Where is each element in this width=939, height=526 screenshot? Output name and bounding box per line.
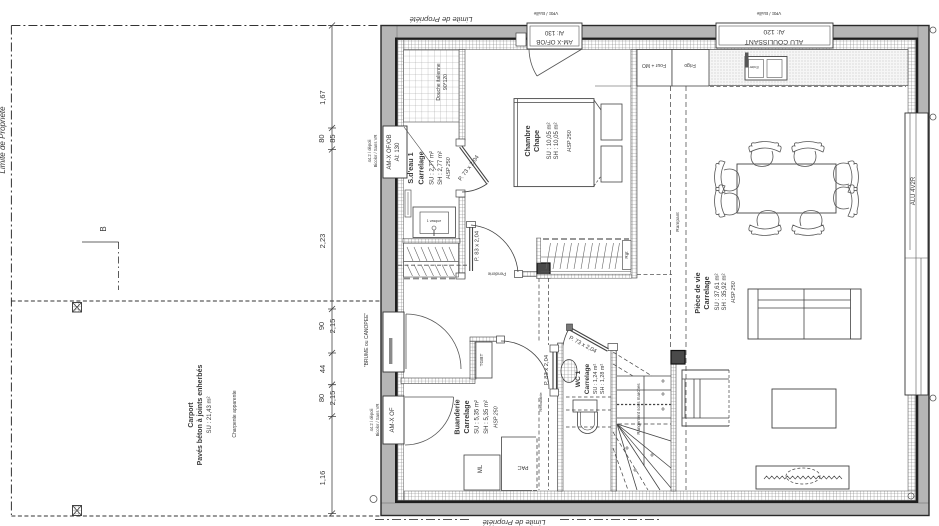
svg-text:2,15: 2,15 [328, 391, 337, 406]
svg-text:Al: 120: Al: 120 [763, 28, 784, 35]
svg-text:Limite de Propriété: Limite de Propriété [410, 15, 473, 24]
svg-text:Carrelage: Carrelage [584, 363, 591, 394]
svg-text:WC 1: WC 1 [575, 370, 582, 387]
svg-text:AM-X OF/OB: AM-X OF/OB [387, 134, 393, 169]
svg-text:Al: 130: Al: 130 [395, 142, 401, 161]
svg-text:2,23: 2,23 [318, 234, 327, 249]
svg-text:Evier: Evier [749, 65, 759, 70]
svg-text:P. 83 x 2,04: P. 83 x 2,04 [544, 354, 550, 385]
svg-text:85: 85 [328, 134, 337, 142]
svg-text:SU : 21,43 m²: SU : 21,43 m² [207, 396, 213, 433]
svg-text:SU : 5,35 m²: SU : 5,35 m² [475, 400, 481, 434]
svg-text:HSP 250: HSP 250 [446, 157, 452, 178]
svg-text:SU : 10,05 m²: SU : 10,05 m² [547, 122, 553, 159]
svg-text:PAC: PAC [518, 464, 529, 470]
svg-text:AM-X OF/OB: AM-X OF/OB [536, 38, 572, 45]
svg-text:Penderie: Penderie [487, 272, 506, 277]
svg-text:SU : 37,61 m²: SU : 37,61 m² [715, 273, 721, 310]
svg-text:1,67: 1,67 [318, 90, 327, 105]
svg-text:90*120: 90*120 [443, 74, 449, 90]
svg-text:ALU COULISSANT: ALU COULISSANT [745, 38, 804, 45]
svg-text:SH : 10,05 m²: SH : 10,05 m² [554, 122, 560, 159]
svg-text:Carrelage: Carrelage [417, 151, 426, 184]
svg-text:Buanderie: Buanderie [453, 399, 462, 434]
svg-text:ALU 4V2R: ALU 4V2R [911, 176, 917, 205]
svg-text:Frigo: Frigo [684, 62, 696, 68]
svg-text:HSP 250: HSP 250 [567, 130, 573, 151]
svg-text:SH : 5,35 m²: SH : 5,35 m² [484, 400, 490, 434]
svg-text:Bicolor / Sans VR: Bicolor / Sans VR [373, 135, 378, 168]
svg-text:Chambre: Chambre [523, 125, 532, 156]
svg-text:Pavés béton à joints enherbés: Pavés béton à joints enherbés [197, 365, 204, 466]
svg-text:Carport: Carport [188, 402, 195, 428]
svg-text:Four + MO: Four + MO [642, 62, 666, 68]
svg-text:Douche italienne: Douche italienne [436, 63, 442, 100]
svg-text:Rampant: Rampant [675, 212, 681, 232]
svg-text:Pièce de vie: Pièce de vie [693, 272, 702, 313]
svg-text:VRE / Baille: VRE / Baille [756, 11, 781, 16]
svg-text:B: B [99, 226, 108, 231]
svg-text:44.2 / dépoli: 44.2 / dépoli [369, 409, 374, 432]
svg-text:VRE / Baille: VRE / Baille [533, 11, 558, 16]
svg-text:Charpente apparente: Charpente apparente [232, 390, 238, 437]
svg-text:P. 73 x 2,04: P. 73 x 2,04 [568, 335, 598, 355]
svg-text:HSP 250: HSP 250 [731, 281, 737, 302]
svg-text:Limite de Propriété: Limite de Propriété [483, 518, 546, 526]
svg-text:Rgt: Rgt [624, 251, 629, 259]
svg-text:S.d'eau 1: S.d'eau 1 [406, 152, 415, 183]
svg-text:Rangement sous marches: Rangement sous marches [636, 383, 641, 435]
svg-text:1 vasque: 1 vasque [427, 219, 442, 223]
svg-text:2,15: 2,15 [328, 319, 337, 334]
svg-text:Limite de Propriété: Limite de Propriété [0, 106, 7, 174]
svg-text:80: 80 [317, 394, 326, 402]
svg-text:HSP 250: HSP 250 [494, 406, 500, 427]
svg-text:ML: ML [478, 464, 484, 473]
svg-text:Carrelage: Carrelage [702, 276, 711, 309]
svg-text:P. 83 x 2,04: P. 83 x 2,04 [475, 230, 481, 261]
svg-text:44.2 / dépoli: 44.2 / dépoli [367, 140, 372, 163]
svg-text:Al: 130: Al: 130 [544, 29, 564, 36]
svg-text:SH : 2,77 m²: SH : 2,77 m² [438, 151, 444, 185]
svg-text:AM-X OF: AM-X OF [390, 407, 396, 432]
svg-text:80: 80 [317, 134, 326, 142]
svg-text:SH : 1,28 m²: SH : 1,28 m² [600, 364, 606, 394]
svg-text:Chape: Chape [532, 130, 541, 152]
svg-text:"BRUME ou CANOPEE": "BRUME ou CANOPEE" [364, 313, 370, 368]
svg-text:SU : 2,77 m²: SU : 2,77 m² [430, 151, 436, 185]
svg-text:TGBT: TGBT [479, 354, 485, 367]
svg-text:1,16: 1,16 [318, 471, 327, 486]
svg-text:SH : 35,92 m²: SH : 35,92 m² [722, 273, 728, 310]
svg-text:90: 90 [317, 322, 326, 330]
svg-text:Bicolor / Sans VR: Bicolor / Sans VR [375, 404, 380, 437]
svg-text:Carrelage: Carrelage [462, 400, 471, 433]
svg-text:SU : 1,24 m²: SU : 1,24 m² [593, 364, 599, 394]
svg-text:44: 44 [318, 365, 327, 373]
